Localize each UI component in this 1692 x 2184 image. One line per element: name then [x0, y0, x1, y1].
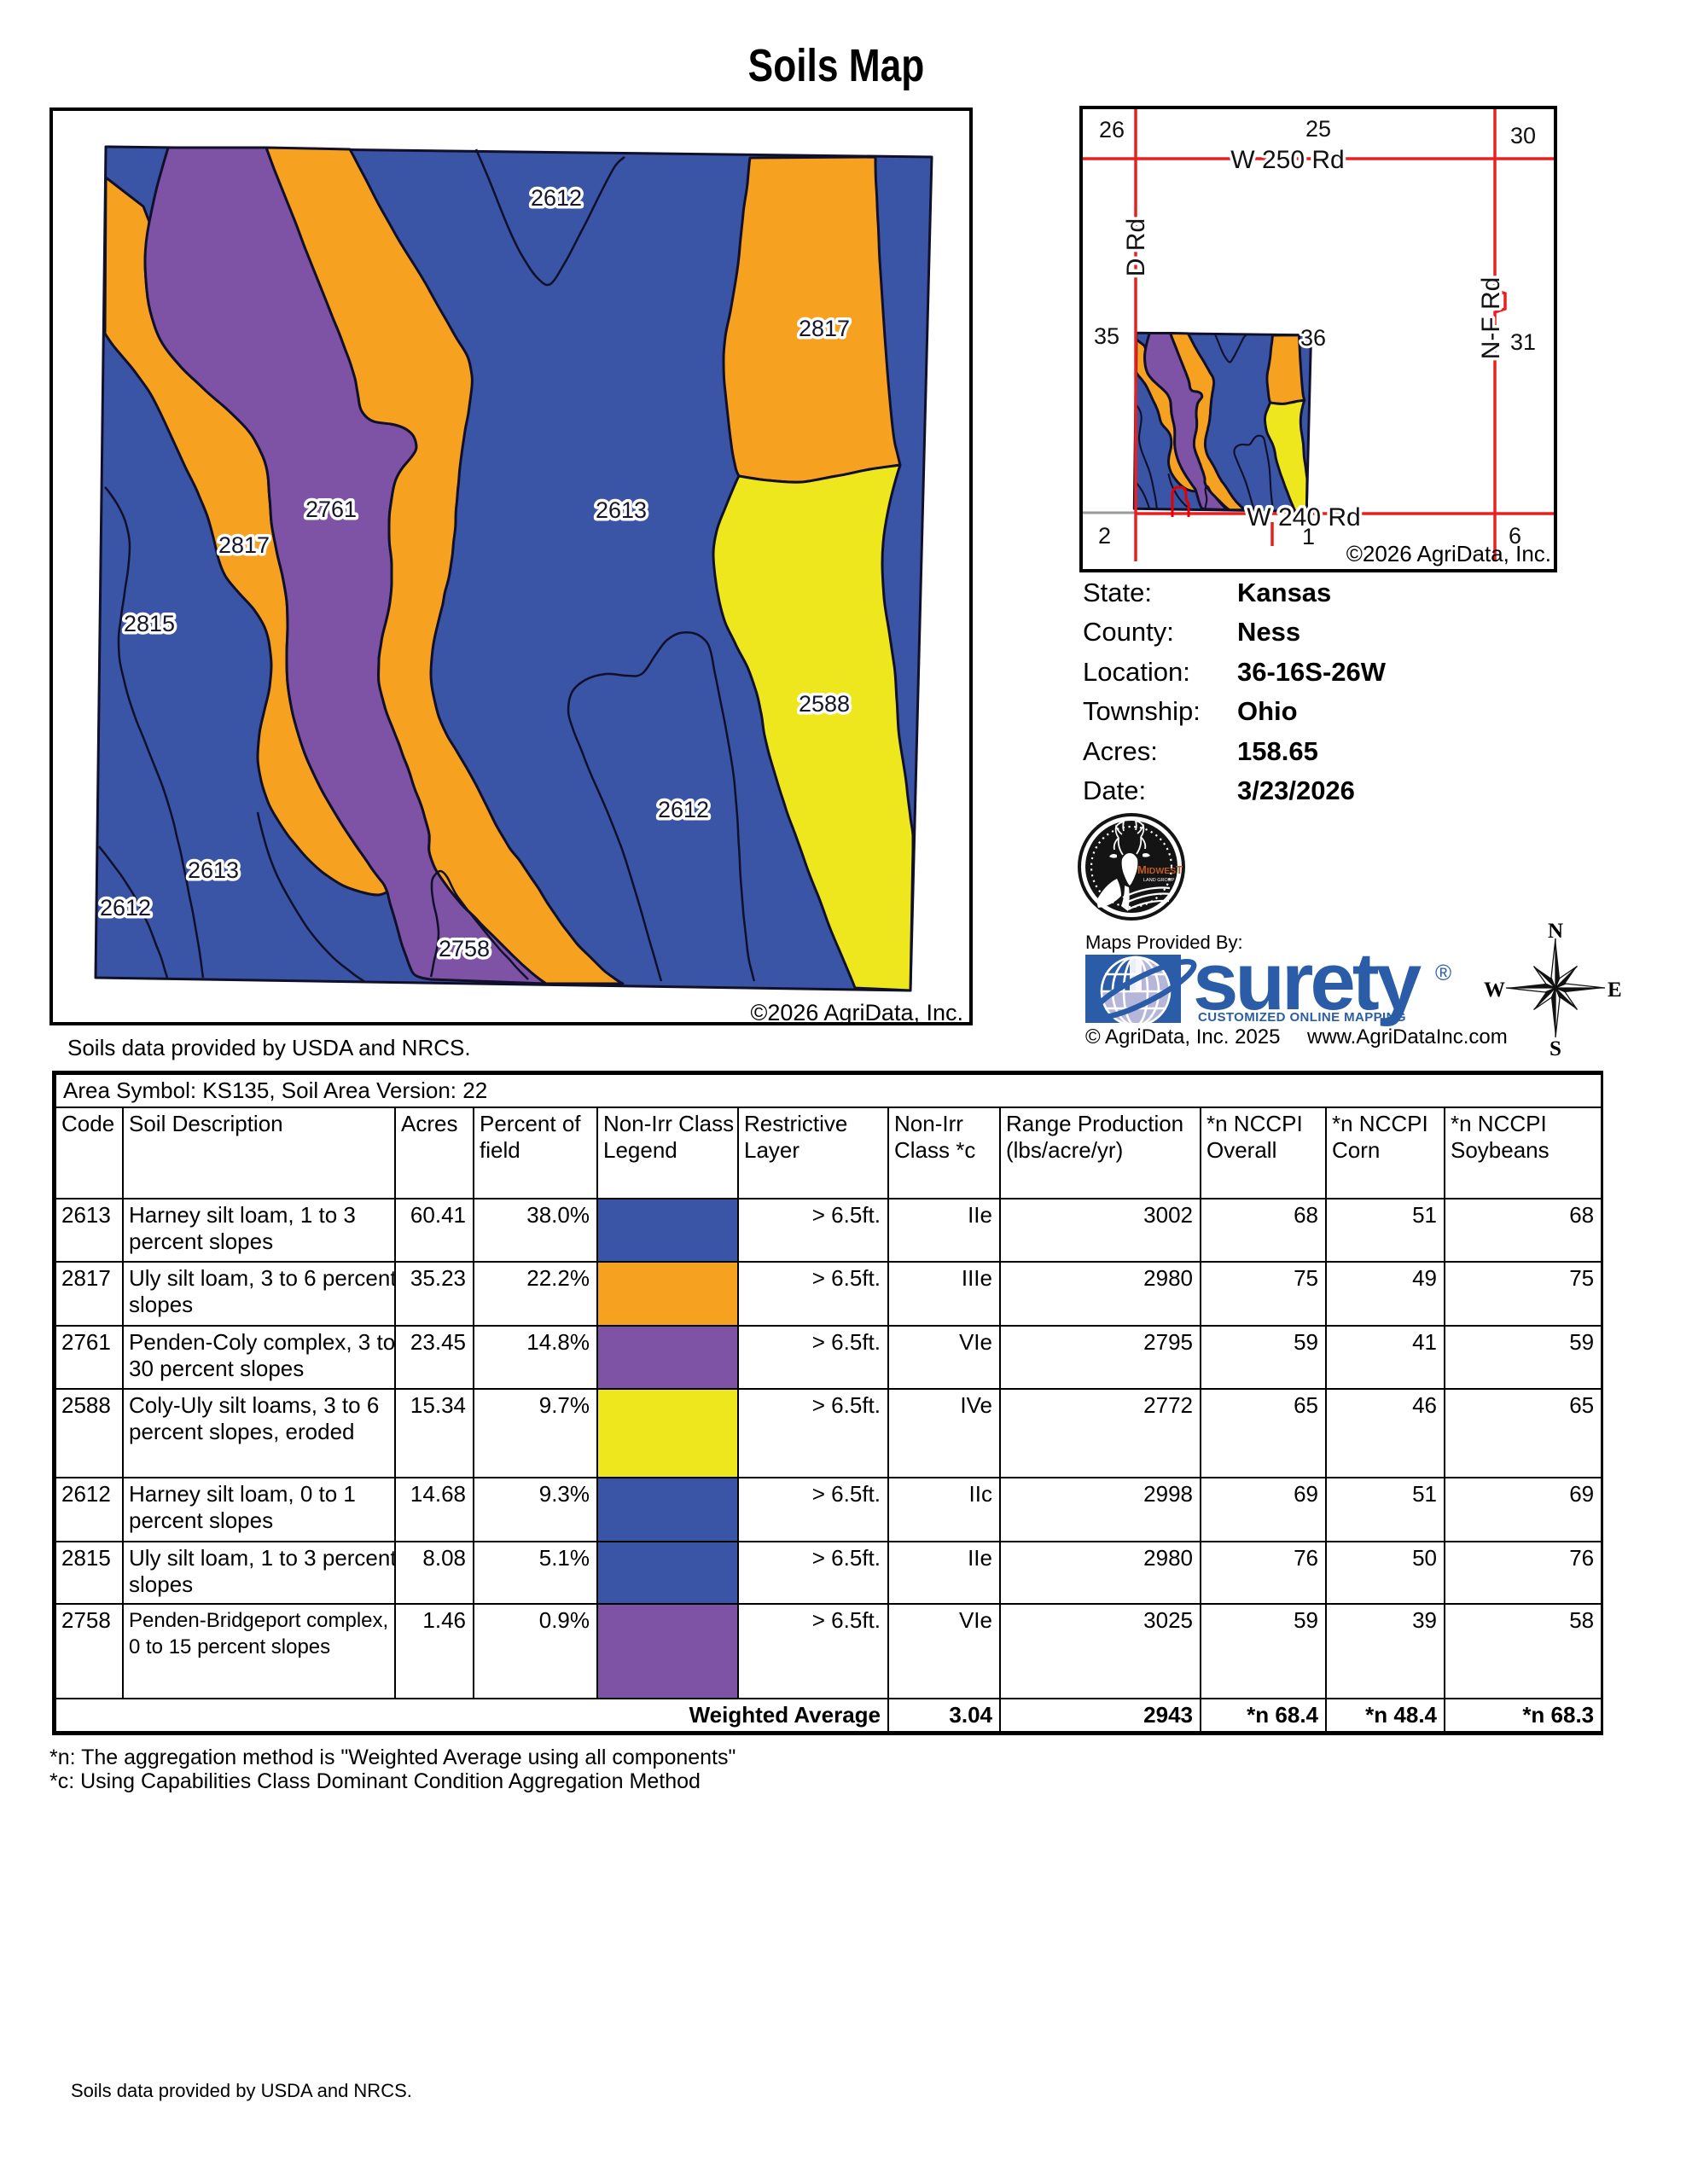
- svg-text:D Rd: D Rd: [1122, 218, 1150, 276]
- svg-text:E: E: [1608, 979, 1622, 1002]
- svg-text:35: 35: [1094, 323, 1119, 349]
- svg-text:W 250 Rd: W 250 Rd: [1230, 146, 1344, 174]
- svg-text:2761: 2761: [305, 497, 357, 522]
- svg-text:©2026 AgriData, Inc.: ©2026 AgriData, Inc.: [1346, 541, 1551, 566]
- svg-text:26: 26: [1099, 117, 1125, 142]
- svg-text:30: 30: [1510, 123, 1536, 148]
- svg-text:MIDWEST: MIDWEST: [1137, 863, 1183, 876]
- svg-text:2815: 2815: [124, 611, 175, 636]
- svg-text:W 240 Rd: W 240 Rd: [1247, 503, 1360, 531]
- svg-text:W: W: [1484, 979, 1505, 1002]
- svg-text:31: 31: [1510, 329, 1536, 355]
- svg-text:S: S: [1550, 1037, 1561, 1060]
- svg-text:2817: 2817: [218, 532, 270, 558]
- svg-text:2612: 2612: [100, 895, 151, 921]
- svg-text:2758: 2758: [439, 936, 490, 961]
- svg-text:2817: 2817: [799, 316, 850, 341]
- svg-text:LAND GROUP: LAND GROUP: [1143, 878, 1175, 883]
- svg-text:2588: 2588: [799, 691, 850, 717]
- svg-text:2613: 2613: [596, 497, 647, 523]
- svg-text:N-F Rd: N-F Rd: [1477, 277, 1505, 360]
- svg-text:36: 36: [1300, 325, 1326, 351]
- svg-text:©2026 AgriData, Inc.: ©2026 AgriData, Inc.: [750, 1000, 963, 1025]
- svg-text:2613: 2613: [188, 857, 239, 883]
- svg-text:N: N: [1548, 920, 1563, 943]
- svg-text:25: 25: [1305, 116, 1331, 142]
- svg-text:2612: 2612: [658, 797, 709, 822]
- svg-text:2612: 2612: [531, 185, 582, 211]
- svg-text:2: 2: [1098, 523, 1111, 549]
